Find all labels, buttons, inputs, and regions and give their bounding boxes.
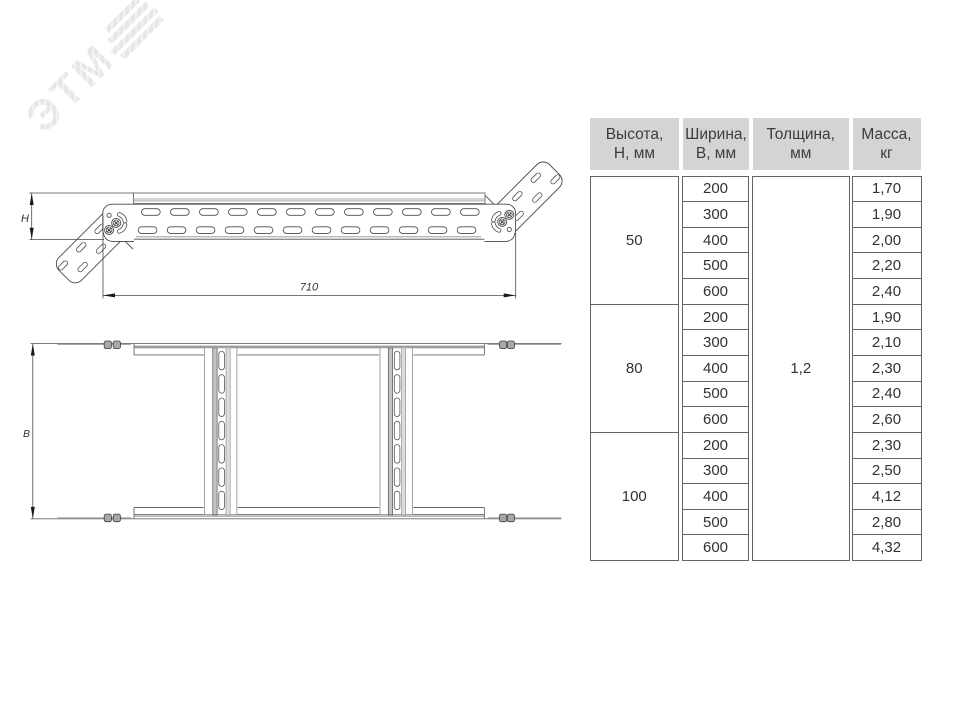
svg-text:H: H [21,213,29,225]
svg-text:710: 710 [300,282,319,294]
svg-text:ЭТМ: ЭТМ [17,34,125,142]
svg-text:B: B [23,428,30,440]
